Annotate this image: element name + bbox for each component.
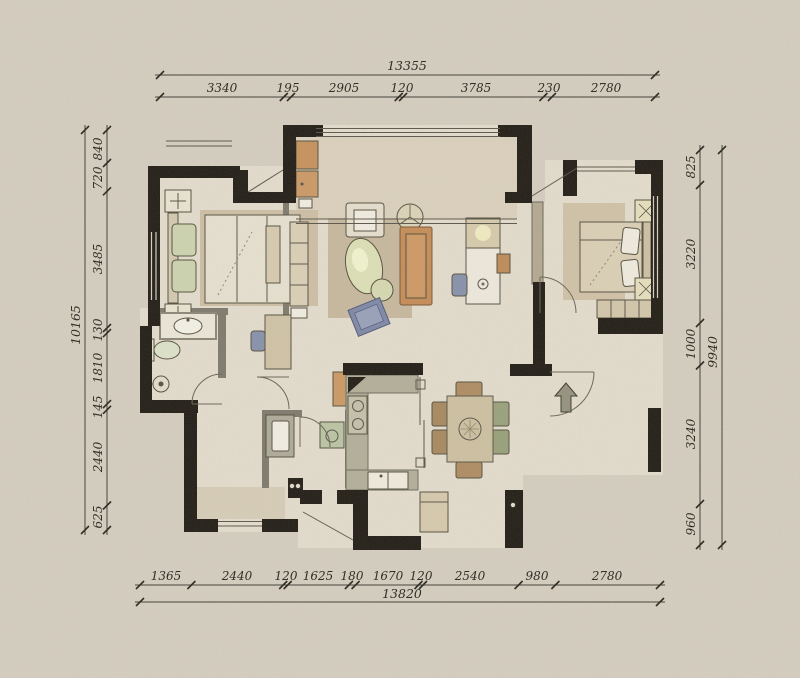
floor-plan-drawing: 13355 3340 195 2905 120 3785 230 2780 13… [0,0,800,678]
floor-plan-page: 13355 3340 195 2905 120 3785 230 2780 13… [0,0,800,678]
paper-grain-texture [0,0,800,678]
